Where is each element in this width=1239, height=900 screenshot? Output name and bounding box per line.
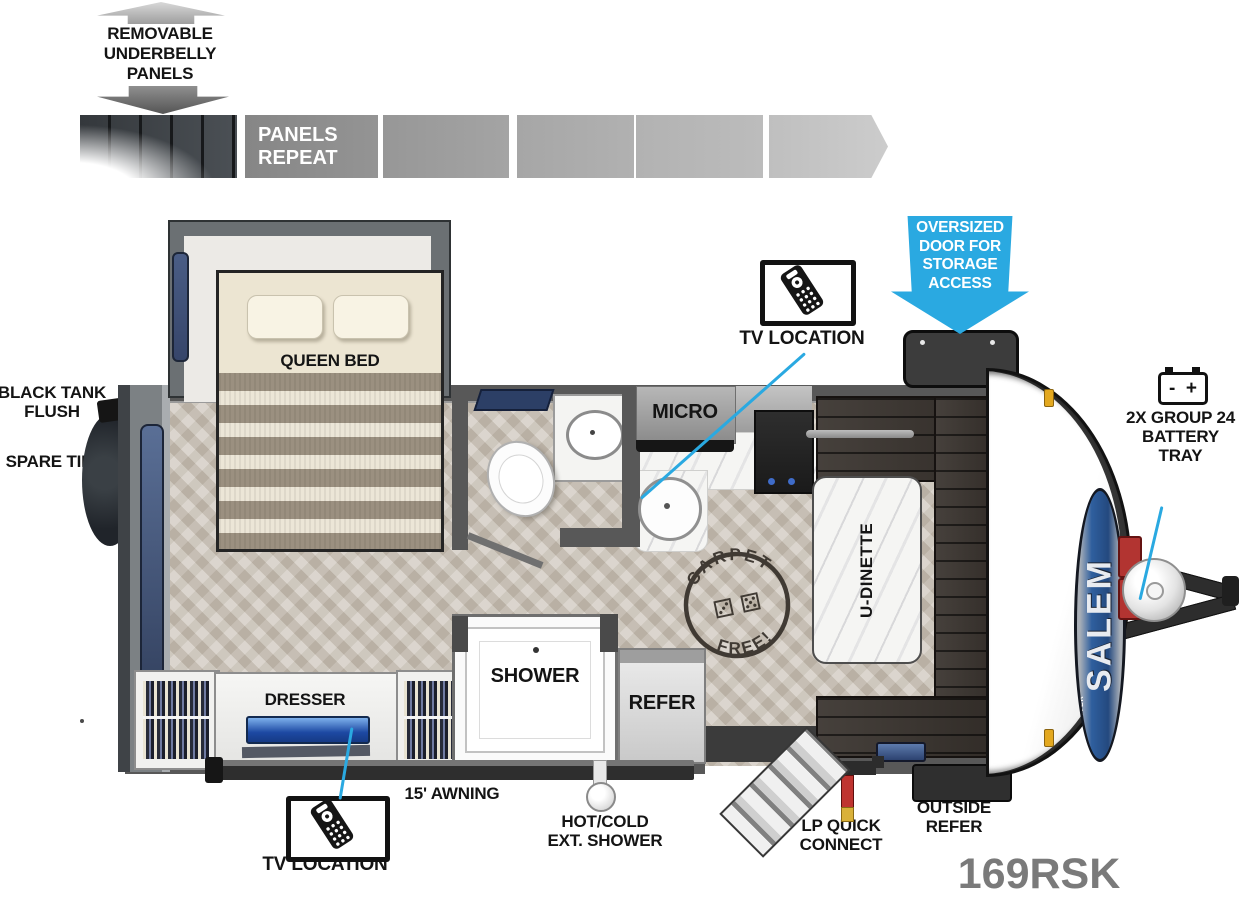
oversized-door-label: OVERSIZED DOOR FOR STORAGE ACCESS [891,219,1029,293]
underbelly-arrow-down-icon [97,86,229,114]
storage-door-screw-right [990,340,995,345]
awning-end-cap [205,757,223,783]
tv-location-top-icon [760,260,856,326]
battery-plus-sign: + [1186,378,1197,400]
cooktop-knob-right [788,478,795,485]
shower: SHOWER [452,614,618,766]
tv-remote-icon [777,262,826,318]
bed-pillow-left [247,295,323,339]
bed-pillow-right [333,295,409,339]
panel-2 [383,115,509,178]
shower-label: SHOWER [455,665,615,687]
battery-tray-label: 2X GROUP 24 BATTERY TRAY [1122,408,1239,465]
panel-3 [517,115,634,178]
wardrobe-right-rod [404,716,456,719]
cooktop-knob-left [768,478,775,485]
stray-dot [80,719,84,723]
outside-refer-label: OUTSIDE REFER [903,798,1005,836]
wardrobe-left [134,670,220,770]
oversized-door-arrow: OVERSIZED DOOR FOR STORAGE ACCESS [891,216,1029,334]
clearance-light-top [1044,389,1054,407]
wardrobe-left-rod [143,716,209,719]
shower-drain [533,647,539,653]
tv-location-bottom-icon [286,796,390,862]
panel-4 [636,115,763,178]
vanity-sink [566,410,624,460]
awning-bar [208,760,694,780]
underbelly-arrow-up-icon [97,2,225,24]
dinette-table: U-DINETTE [812,476,922,664]
tv-location-top-label: TV LOCATION [736,328,868,349]
bathroom-skylight-window [473,389,554,411]
kitchen-sink [638,477,702,541]
forest-river-text: FOREST RIVER [1078,491,1085,759]
clearance-light-bottom [1044,729,1054,747]
awning-label: 15' AWNING [396,784,508,803]
dresser-shadow [242,745,370,758]
floorplan-diagram: REMOVABLE UNDERBELLY PANELS PANELS REPEA… [0,0,1239,900]
dresser: DRESSER [214,672,400,768]
bathroom-bottom-wall [560,528,640,547]
microwave: MICRO [636,386,736,444]
towel-bar [806,430,914,438]
ext-shower-valve-icon [586,782,616,812]
panels-repeat-label: PANELS REPEAT [258,124,378,170]
refrigerator-top-band [620,650,704,663]
battery-icon: - + [1158,372,1208,405]
salem-logo: SALEM FOREST RIVER [1074,488,1126,762]
underbelly-label: REMOVABLE UNDERBELLY PANELS [85,24,235,84]
vanity-faucet [590,430,595,435]
wardrobe-left-clothes [143,681,209,759]
microwave-label: MICRO [637,401,733,423]
battery-minus-sign: - [1169,378,1175,400]
black-tank-flush-label: BLACK TANK FLUSH [0,383,108,421]
refrigerator: REFER [618,648,706,764]
dinette-table-label: U-DINETTE [814,478,920,662]
rear-window [140,424,164,698]
salem-logo-text: SALEM [1083,491,1117,759]
slideout-window [172,252,189,362]
counter-edge [636,440,734,452]
shower-post-left [452,616,468,652]
lp-connector-tip [841,807,854,822]
panel-arrow [769,115,888,178]
panels-repeat-panel: PANELS REPEAT [245,115,378,178]
cooktop [754,410,814,494]
kitchen-faucet [664,503,670,509]
bathroom-left-wall [452,398,468,550]
dresser-label: DRESSER [216,690,394,709]
propane-tank-valve [1146,582,1164,600]
propane-tank [1122,558,1186,622]
ext-shower-label: HOT/COLD EXT. SHOWER [546,812,664,850]
underbelly-panel-dark [80,115,237,178]
model-number: 169RSK [938,850,1140,899]
queen-bed: QUEEN BED [216,270,444,552]
bed-blanket [219,373,441,549]
hitch-coupler [1222,576,1239,606]
storage-door-screw-left [920,340,925,345]
queen-bed-label: QUEEN BED [255,351,405,370]
stamp-icons: ⚂ ⚄ [711,588,764,624]
tv-remote-icon [307,796,356,852]
lp-bracket-tab [872,756,884,768]
refrigerator-label: REFER [620,692,704,714]
wardrobe-right-clothes [404,681,456,759]
lp-connector-icon [841,775,854,809]
shower-inner-line [479,641,591,739]
shower-post-right [600,614,618,652]
toilet-seat [491,447,552,511]
